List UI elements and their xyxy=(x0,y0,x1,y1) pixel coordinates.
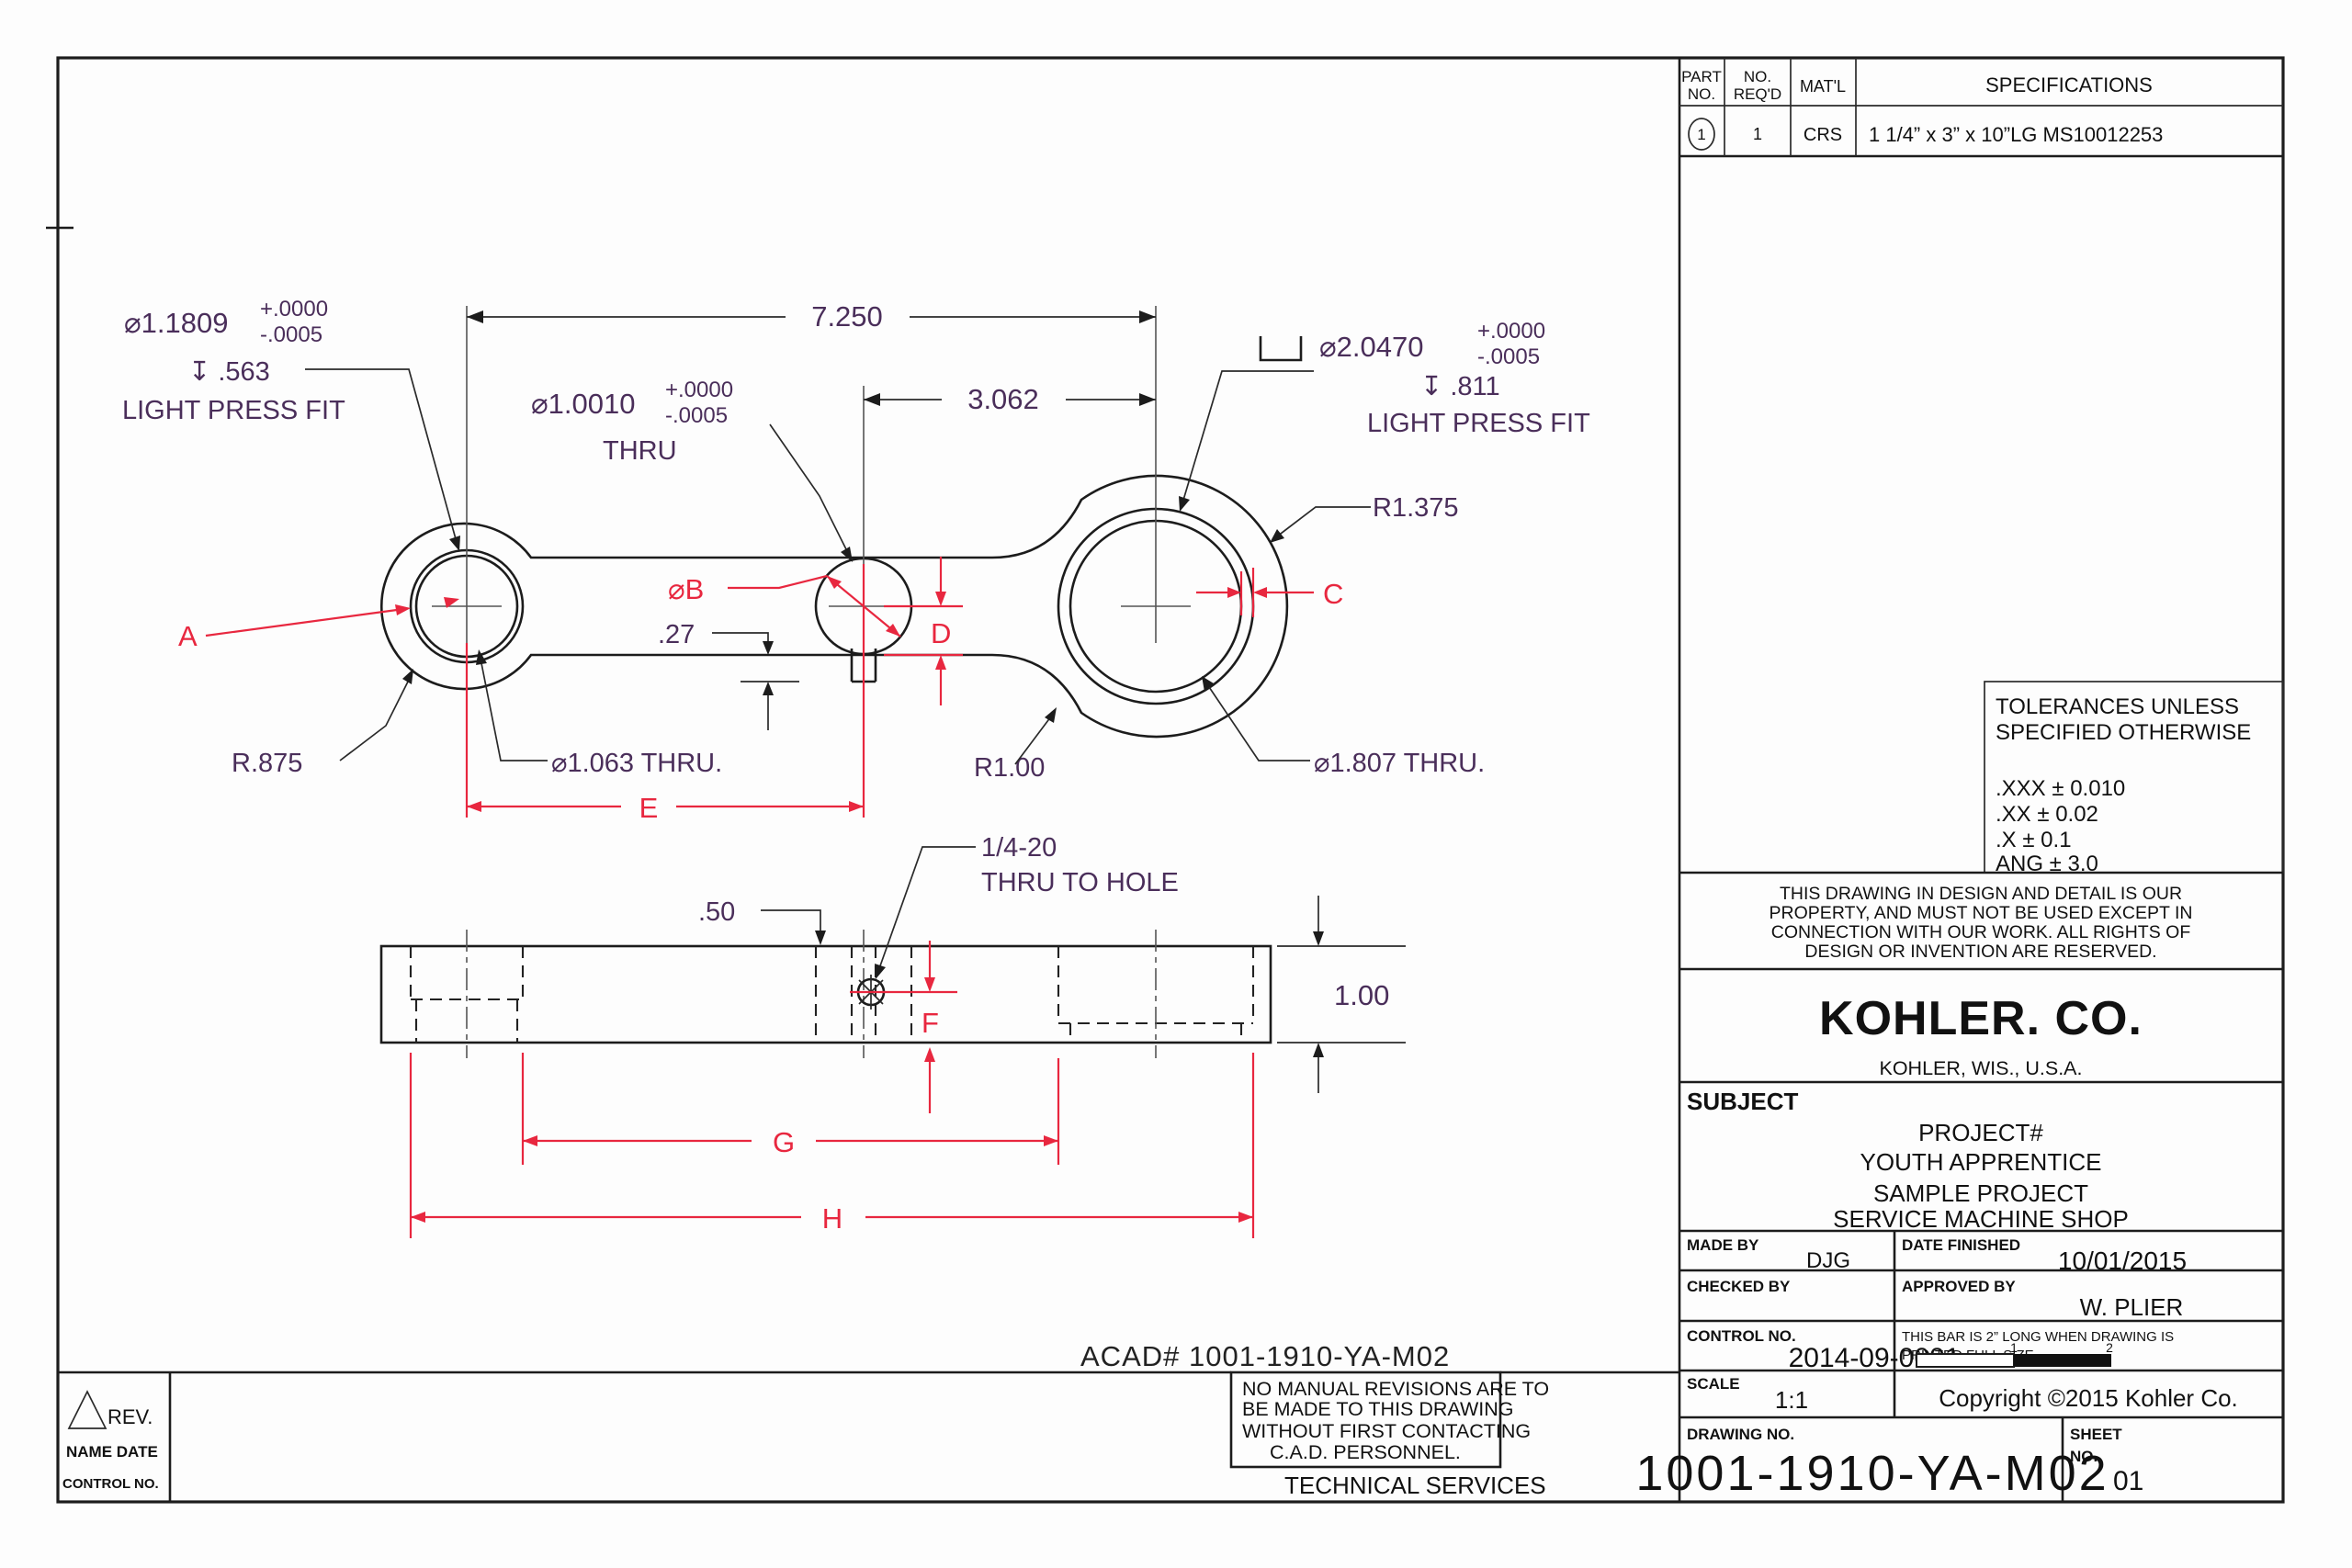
callout-right-bore: ⌀2.0470 +.0000 -.0005 ↧ .811 LIGHT PRESS… xyxy=(1179,319,1590,512)
dim-F: F xyxy=(850,941,957,1113)
subject-label: SUBJECT xyxy=(1687,1088,1798,1115)
bottom-strip: ACAD# 1001-1910-YA-M02 NO MANUAL REVISIO… xyxy=(1080,1340,1549,1499)
subject-line-2: YOUTH APPRENTICE xyxy=(1860,1148,2102,1176)
acad-ref-text: ACAD# 1001-1910-YA-M02 xyxy=(1080,1340,1450,1372)
tol-minus-mid: -.0005 xyxy=(665,403,728,428)
drawing-no-value: 1001-1910-YA-M02 xyxy=(1635,1446,2109,1501)
bar-tick-2: 2 xyxy=(2106,1340,2113,1355)
callout-r1375: R1.375 xyxy=(1270,493,1459,543)
letter-f-text: F xyxy=(922,1007,939,1039)
subject-line-4: SERVICE MACHINE SHOP xyxy=(1833,1205,2129,1233)
callout-left-bore: ⌀1.1809 +.0000 -.0005 ↧ .563 LIGHT PRESS… xyxy=(122,297,460,551)
control-no-label: CONTROL NO. xyxy=(1687,1327,1796,1345)
letter-h-text: H xyxy=(822,1202,842,1235)
note-line-3: CONNECTION WITH OUR WORK. ALL RIGHTS OF xyxy=(1771,922,2191,942)
date-finished-value: 10/01/2015 xyxy=(2058,1247,2187,1275)
col-specifications: SPECIFICATIONS xyxy=(1985,73,2153,96)
dim-27: .27 xyxy=(658,620,799,730)
dia-1063-text: ⌀1.063 THRU. xyxy=(551,749,722,778)
dim-B: ⌀B xyxy=(668,573,900,637)
tolerance-block: TOLERANCES UNLESS SPECIFIED OTHERWISE .X… xyxy=(1996,694,2251,876)
kohler-location: KOHLER, WIS., U.S.A. xyxy=(1879,1057,2082,1079)
scale-value: 1:1 xyxy=(1775,1386,1808,1414)
rev-control-label: CONTROL NO. xyxy=(62,1476,159,1492)
col-noreqd: NO. xyxy=(1744,68,1771,85)
nm-line-4: C.A.D. PERSONNEL. xyxy=(1270,1441,1461,1463)
part-side-view xyxy=(381,930,1271,1058)
note-line-1: THIS DRAWING IN DESIGN AND DETAIL IS OUR xyxy=(1780,884,2182,904)
dim-E: E xyxy=(467,792,864,824)
letter-a-text: A xyxy=(178,620,198,652)
letter-g-text: G xyxy=(773,1126,795,1158)
tol-plus-mid: +.0000 xyxy=(665,378,733,402)
scale-bar-black xyxy=(2014,1354,2111,1367)
letter-b-text: ⌀B xyxy=(668,573,704,605)
r875-text: R.875 xyxy=(232,749,302,778)
col-matl: MAT'L xyxy=(1800,77,1846,96)
note-line-4: DESIGN OR INVENTION ARE RESERVED. xyxy=(1804,942,2156,962)
counterbore-icon xyxy=(1261,336,1301,360)
dim-3-062-text: 3.062 xyxy=(967,383,1039,415)
dim-1-00: 1.00 xyxy=(1277,896,1406,1093)
r100-text: R1.00 xyxy=(974,753,1045,783)
dim-50: .50 xyxy=(698,897,826,945)
nm-line-3: WITHOUT FIRST CONTACTING xyxy=(1242,1420,1531,1442)
dim-C: C xyxy=(1196,568,1343,617)
kohler-logo: KOHLER. CO. xyxy=(1819,992,2143,1045)
note-line-2: PROPERTY, AND MUST NOT BE USED EXCEPT IN xyxy=(1770,903,2193,923)
callout-middle-bore: ⌀1.0010 +.0000 -.0005 THRU xyxy=(531,378,853,562)
thread-note-text: THRU TO HOLE xyxy=(981,868,1179,897)
light-press-fit-left: LIGHT PRESS FIT xyxy=(122,396,345,425)
name-date-label: NAME DATE xyxy=(66,1443,158,1461)
dia-1-0010-text: ⌀1.0010 xyxy=(531,388,635,420)
sheet-no-value: 01 xyxy=(2113,1466,2143,1496)
rev-label: REV. xyxy=(107,1405,153,1428)
tol-minus: -.0005 xyxy=(260,322,322,347)
nm-line-1: NO MANUAL REVISIONS ARE TO xyxy=(1242,1378,1549,1400)
subject-block: SUBJECT PROJECT# YOUTH APPRENTICE SAMPLE… xyxy=(1687,1088,2129,1233)
made-by-value: DJG xyxy=(1806,1248,1850,1273)
tol-xx: .XX ± 0.02 xyxy=(1996,802,2098,827)
sheet-label-1: SHEET xyxy=(2070,1426,2122,1443)
dim-G: G xyxy=(523,1053,1058,1165)
callout-r100: R1.00 xyxy=(974,707,1057,783)
part-no-value: 1 xyxy=(1697,126,1705,143)
parts-table: PART NO. NO. REQ'D MAT'L SPECIFICATIONS … xyxy=(1681,68,2163,150)
tol-x: .X ± 0.1 xyxy=(1996,828,2072,852)
checked-by-label: CHECKED BY xyxy=(1687,1278,1791,1295)
tol-minus-right: -.0005 xyxy=(1477,344,1540,369)
technical-services-text: TECHNICAL SERVICES xyxy=(1284,1472,1546,1499)
dim-3-062: 3.062 xyxy=(864,383,1156,415)
sheet-label-2: NO. xyxy=(2070,1448,2098,1465)
callout-r875: R.875 xyxy=(232,669,413,778)
letter-d-text: D xyxy=(931,617,951,649)
dia-1807-text: ⌀1.807 THRU. xyxy=(1314,749,1485,778)
dim-50-text: .50 xyxy=(698,897,735,927)
letter-c-text: C xyxy=(1323,578,1343,610)
col-part: PART xyxy=(1681,68,1722,85)
callout-dia1807: ⌀1.807 THRU. xyxy=(1202,676,1485,778)
depth-563-text: ↧ .563 xyxy=(188,357,270,387)
light-press-fit-right: LIGHT PRESS FIT xyxy=(1367,409,1590,438)
copyright-text: Copyright ©2015 Kohler Co. xyxy=(1939,1384,2238,1412)
top-view-centerlines xyxy=(432,306,1191,818)
nm-line-2: BE MADE TO THIS DRAWING xyxy=(1242,1398,1513,1420)
subject-line-3: SAMPLE PROJECT xyxy=(1873,1179,2088,1207)
made-by-label: MADE BY xyxy=(1687,1236,1759,1254)
approved-by-label: APPROVED BY xyxy=(1902,1278,2016,1295)
dim-27-text: .27 xyxy=(658,620,695,649)
specifications-value: 1 1/4” x 3” x 10”LG MS10012253 xyxy=(1869,123,2163,146)
thread-size-text: 1/4-20 xyxy=(981,833,1057,863)
drawing-number-row: DRAWING NO. 1001-1910-YA-M02 SHEET NO. 0… xyxy=(1635,1426,2143,1501)
bar-tick-1: 1 xyxy=(2010,1340,2018,1355)
subject-line-1: PROJECT# xyxy=(1918,1119,2043,1146)
tol-title-2: SPECIFIED OTHERWISE xyxy=(1996,720,2251,745)
property-note: THIS DRAWING IN DESIGN AND DETAIL IS OUR… xyxy=(1770,884,2193,962)
callout-quarter-20: 1/4-20 THRU TO HOLE xyxy=(875,833,1179,979)
dim-1-00-text: 1.00 xyxy=(1334,979,1389,1011)
tol-ang: ANG ± 3.0 xyxy=(1996,852,2098,876)
dim-7-250-text: 7.250 xyxy=(811,300,883,333)
dia-1-1809-text: ⌀1.1809 xyxy=(124,307,228,339)
depth-811-text: ↧ .811 xyxy=(1420,372,1500,401)
company-block: KOHLER. CO. KOHLER, WIS., U.S.A. xyxy=(1819,992,2143,1079)
scale-bar-white xyxy=(1917,1354,2014,1367)
approved-by-value: W. PLIER xyxy=(2080,1293,2184,1321)
letter-e-text: E xyxy=(639,792,659,824)
date-finished-label: DATE FINISHED xyxy=(1902,1236,2020,1254)
thru-text: THRU xyxy=(603,436,677,466)
blueprint-page: 7.250 3.062 ⌀1.1809 +.0000 -.0005 ↧ .563… xyxy=(0,0,2352,1568)
scale-bar-block: THIS BAR IS 2” LONG WHEN DRAWING IS PRIN… xyxy=(1902,1329,2174,1367)
drawing-no-label: DRAWING NO. xyxy=(1687,1426,1794,1443)
scale-row: SCALE 1:1 Copyright ©2015 Kohler Co. xyxy=(1687,1375,2238,1414)
callout-dia1063: ⌀1.063 THRU. xyxy=(476,649,722,778)
tol-xxx: .XXX ± 0.010 xyxy=(1996,776,2125,801)
rev-triangle-icon xyxy=(69,1392,106,1428)
col-noreqd2: REQ'D xyxy=(1734,85,1781,103)
scale-label: SCALE xyxy=(1687,1375,1740,1393)
col-part2: NO. xyxy=(1688,85,1715,103)
tol-title-1: TOLERANCES UNLESS xyxy=(1996,694,2239,719)
material-value: CRS xyxy=(1804,125,1842,145)
dim-7-250: 7.250 xyxy=(467,300,1156,333)
qty-value: 1 xyxy=(1753,125,1762,143)
dia-2-0470-text: ⌀2.0470 xyxy=(1319,331,1423,363)
tol-plus-right: +.0000 xyxy=(1477,319,1545,344)
bar-note-1: THIS BAR IS 2” LONG WHEN DRAWING IS xyxy=(1902,1329,2174,1345)
tol-plus: +.0000 xyxy=(260,297,328,321)
r1375-text: R1.375 xyxy=(1373,493,1459,523)
